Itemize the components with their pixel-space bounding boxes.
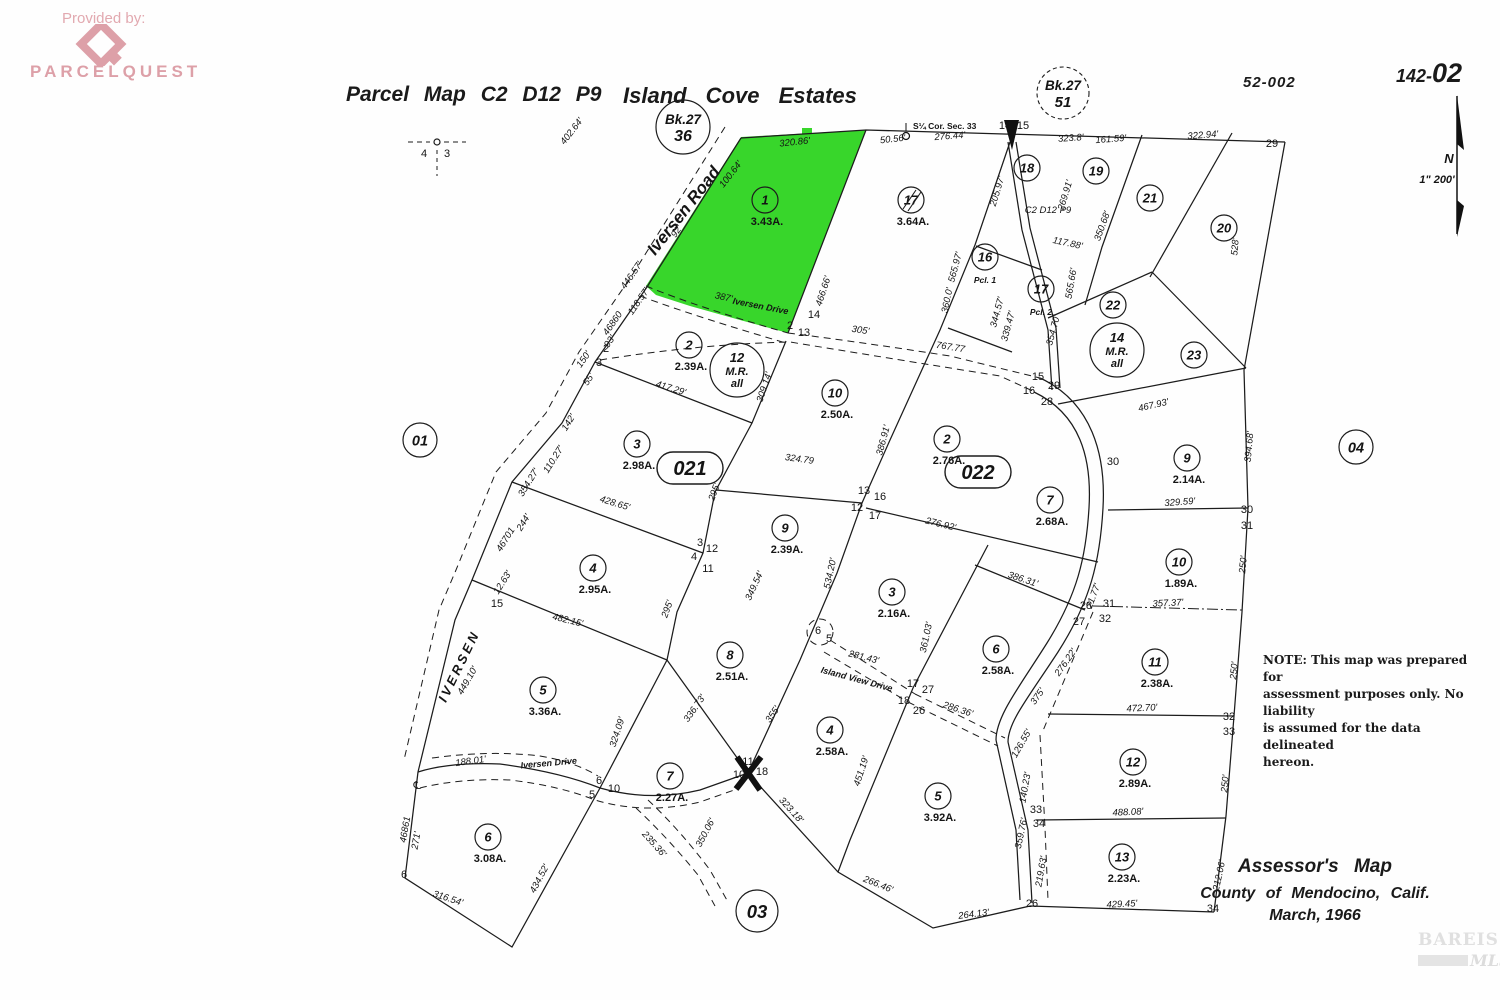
lot-corner-number: 16 bbox=[874, 491, 886, 503]
lot-corner-number: 13 bbox=[798, 327, 810, 339]
parcel-number: 2 bbox=[942, 432, 951, 447]
parcel-number: 7 bbox=[1046, 493, 1054, 508]
measurement-label: C2 D12 P9 bbox=[1025, 205, 1072, 216]
parcel-number: 8 bbox=[726, 648, 734, 663]
lot-corner-number: 16 bbox=[1023, 385, 1035, 397]
parcel-number: 18 bbox=[1020, 161, 1035, 176]
svg-text:4: 4 bbox=[421, 148, 427, 160]
measurement-label: 118.57' bbox=[626, 285, 653, 317]
acreage-label: 2.14A. bbox=[1173, 474, 1205, 486]
measurement-label: 467.93' bbox=[1137, 396, 1171, 414]
measurement-label: 50.56' bbox=[879, 133, 907, 147]
measurement-label: 323.8' bbox=[1058, 132, 1085, 145]
lot-corner-number: 28 bbox=[1041, 396, 1053, 408]
lot-corner-number: 28 bbox=[1080, 600, 1092, 612]
acreage-label: 2.68A. bbox=[1036, 516, 1068, 528]
lot-corner-number: 10 bbox=[733, 769, 745, 781]
area-code-label: 03 bbox=[747, 901, 768, 922]
measurement-label: 767.77 bbox=[935, 340, 966, 356]
acreage-label: 2.95A. bbox=[579, 584, 611, 596]
lot-corner-number: 13 bbox=[858, 485, 870, 497]
lot-corner-number: 15 bbox=[1032, 371, 1044, 383]
lot-corner-number: 4 bbox=[691, 551, 697, 563]
lot-corner-number: 6 bbox=[596, 775, 602, 787]
measurement-label: 140.23' bbox=[1017, 770, 1033, 803]
measurement-label: 349.54' bbox=[743, 569, 767, 603]
measurement-label: 12.63' bbox=[491, 568, 515, 597]
measurement-label: 55' bbox=[581, 370, 598, 387]
book-circle-51: Bk.27 51 bbox=[1037, 67, 1089, 119]
measurement-label: 354.27' bbox=[516, 466, 542, 499]
lot-corner-number: 34 bbox=[1207, 903, 1219, 915]
acreage-label: 1.89A. bbox=[1165, 578, 1197, 590]
parcel-number: 5 bbox=[539, 683, 547, 698]
lot-corner-number: 29 bbox=[1266, 138, 1278, 150]
parcel-number: 17 bbox=[1034, 282, 1049, 297]
measurement-label: 286.36' bbox=[940, 699, 975, 720]
measurement-label: 324.09' bbox=[608, 715, 628, 749]
mr-parcel-label: all bbox=[731, 378, 744, 390]
measurement-label: 434.52' bbox=[528, 862, 553, 895]
lot-corner-number: 33 bbox=[1223, 726, 1235, 738]
mr-parcel-label: M.R. bbox=[1105, 346, 1128, 358]
measurement-label: 205.97' bbox=[988, 174, 1008, 209]
lot-corner-number: 10 bbox=[608, 783, 620, 795]
acreage-label: 2.39A. bbox=[771, 544, 803, 556]
parcel-number: 6 bbox=[992, 642, 1000, 657]
measurement-label: 281.43' bbox=[846, 648, 881, 667]
parcel-number: 5 bbox=[934, 789, 942, 804]
corner-section-note: S¼ Cor. Sec. 33 bbox=[913, 121, 977, 131]
measurement-label: 188.01' bbox=[455, 754, 488, 769]
measurement-label: 357.37' bbox=[1152, 597, 1185, 610]
parcel-map[interactable]: S¼ Cor. Sec. 33 Bk.27 36 Bk.27 51 4 3 N … bbox=[0, 0, 1500, 1000]
lot-corner-number: 30 bbox=[1107, 456, 1119, 468]
measurement-label: 46701 bbox=[494, 526, 517, 554]
measurement-label: 386.31' bbox=[1006, 570, 1040, 590]
lot-corner-number: 27 bbox=[922, 684, 934, 696]
measurement-label: 150' bbox=[574, 348, 594, 370]
acreage-label: 3.43A. bbox=[751, 216, 783, 228]
lot-corner-number: 2 bbox=[787, 320, 793, 332]
measurement-label: 417.29' bbox=[654, 379, 688, 399]
parcel-number: 7 bbox=[666, 769, 674, 784]
acreage-label: 2.16A. bbox=[878, 608, 910, 620]
measurement-label: 305' bbox=[851, 324, 871, 338]
acreage-label: 3.92A. bbox=[924, 812, 956, 824]
measurement-label: 271' bbox=[409, 830, 423, 851]
parcel-boundary-lines bbox=[405, 130, 1285, 947]
parcel-number: 16 bbox=[978, 250, 993, 265]
acreage-label: 2.58A. bbox=[816, 746, 848, 758]
lot-corner-number: 31 bbox=[1103, 598, 1115, 610]
parcel-number: 12 bbox=[1126, 755, 1141, 770]
lot-corner-number: 11 bbox=[742, 756, 753, 768]
lot-corner-number: 5 bbox=[826, 633, 832, 645]
measurement-label: 565.66' bbox=[1063, 266, 1079, 299]
acreage-label: 3.64A. bbox=[897, 216, 929, 228]
acreage-label: 2.23A. bbox=[1108, 873, 1140, 885]
lot-corner-number: 12 bbox=[706, 543, 718, 555]
acreage-label: 2.50A. bbox=[821, 409, 853, 421]
svg-text:3: 3 bbox=[444, 148, 450, 160]
lot-corner-number: 6 bbox=[815, 625, 821, 637]
parcel-number: 4 bbox=[588, 561, 597, 576]
measurement-label: 161.59' bbox=[1095, 133, 1128, 146]
svg-text:Bk.27: Bk.27 bbox=[1045, 78, 1083, 93]
svg-text:51: 51 bbox=[1055, 94, 1072, 111]
measurement-label: 472.70' bbox=[1126, 702, 1159, 715]
lot-corner-number: 33 bbox=[1030, 804, 1042, 816]
measurement-label: 394.68' bbox=[1243, 430, 1257, 463]
acreage-label: 2.38A. bbox=[1141, 678, 1173, 690]
lot-corner-number: ℄ bbox=[412, 780, 420, 792]
lot-corner-number: 27 bbox=[1073, 616, 1085, 628]
measurement-label: 354.70' bbox=[1044, 313, 1063, 347]
parcel-number: 9 bbox=[1183, 451, 1191, 466]
lot-corner-number: 2 bbox=[603, 343, 609, 355]
parcel-number: 3 bbox=[633, 437, 641, 452]
lot-corner-number: 15 bbox=[491, 598, 503, 610]
area-code-label: 021 bbox=[673, 458, 706, 480]
acreage-label: 3.36A. bbox=[529, 706, 561, 718]
parcel-number: 6 bbox=[484, 830, 492, 845]
parcel-number: 11 bbox=[1148, 655, 1162, 670]
area-code-label: 04 bbox=[1348, 441, 1364, 457]
lot-corner-number: 6 bbox=[401, 869, 407, 881]
svg-text:Bk.27: Bk.27 bbox=[665, 112, 703, 127]
measurement-label: 336.73' bbox=[682, 692, 709, 725]
parcel-number: 10 bbox=[828, 386, 843, 401]
mr-parcel-number: 12 bbox=[730, 350, 745, 365]
parcel-map-page: Provided by: PARCELQUEST Parcel Map C2 D… bbox=[0, 0, 1500, 1000]
measurement-label: 466.66' bbox=[814, 274, 834, 308]
scale-label: 1" 200' bbox=[1419, 174, 1455, 186]
lot-corner-number: 31 bbox=[1241, 520, 1253, 532]
acreage-label: 2.27A. bbox=[656, 792, 688, 804]
acreage-label: 2.58A. bbox=[982, 665, 1014, 677]
measurement-label: 266.46' bbox=[861, 873, 896, 896]
parcel-number: 2 bbox=[684, 338, 693, 353]
measurement-label: 264.13' bbox=[957, 907, 991, 922]
mr-parcel-label: all bbox=[1111, 358, 1124, 370]
parcel-number: 19 bbox=[1089, 164, 1104, 179]
measurement-label: 565.97' bbox=[946, 250, 965, 284]
lot-corner-number: 3 bbox=[596, 357, 602, 369]
area-code-label: 022 bbox=[961, 462, 994, 484]
lot-corner-number: 17 bbox=[907, 678, 919, 690]
parcel-number: 21 bbox=[1142, 191, 1157, 206]
area-code-label: 01 bbox=[412, 434, 428, 450]
measurement-label: 244' bbox=[514, 511, 534, 534]
acreage-label: 2.51A. bbox=[716, 671, 748, 683]
measurement-label: 329.59' bbox=[1164, 496, 1197, 509]
book-circle-36: Bk.27 36 bbox=[656, 100, 710, 154]
measurement-label: 276.44' bbox=[933, 130, 967, 143]
measurement-label: 322.94' bbox=[1187, 129, 1220, 142]
lot-corner-number: 34 bbox=[1033, 818, 1045, 830]
acreage-label: 2.89A. bbox=[1119, 778, 1151, 790]
section-corner-mark: 4 3 bbox=[408, 139, 466, 176]
lot-corner-number: 26 bbox=[1026, 898, 1038, 910]
lot-corner-number: 26 bbox=[913, 705, 925, 717]
lot-corner-number: 30 bbox=[1241, 504, 1253, 516]
measurement-label: 375' bbox=[1028, 685, 1048, 707]
measurement-label: 488.08' bbox=[1112, 806, 1145, 819]
measurement-label: 250' bbox=[1237, 554, 1250, 575]
lot-corner-number: 5 bbox=[589, 789, 595, 801]
parcel-number: 1 bbox=[761, 193, 768, 208]
measurement-label: 482.15' bbox=[551, 612, 585, 630]
lot-corner-number: 17 bbox=[869, 510, 881, 522]
parcel-number: 22 bbox=[1105, 298, 1121, 313]
parcel-number: 23 bbox=[1186, 348, 1202, 363]
mr-parcel-number: 14 bbox=[1110, 330, 1125, 345]
parcel-number: 4 bbox=[825, 723, 834, 738]
measurement-label: 429.45' bbox=[1106, 898, 1139, 911]
measurement-label: 110.27' bbox=[541, 443, 567, 475]
measurement-label: 212.06' bbox=[1211, 858, 1229, 893]
measurement-label: 276.92' bbox=[923, 515, 958, 534]
measurement-label: 126.55' bbox=[1009, 727, 1035, 760]
acreage-label: 2.98A. bbox=[623, 460, 655, 472]
measurement-label: 350.06' bbox=[694, 816, 719, 849]
measurement-label: 360.0' bbox=[940, 286, 956, 314]
lot-corner-number: 12 bbox=[851, 502, 863, 514]
measurement-label: 451.19' bbox=[852, 754, 872, 788]
measurement-label: 250' bbox=[1228, 660, 1241, 681]
acreage-label: 3.08A. bbox=[474, 853, 506, 865]
svg-text:36: 36 bbox=[674, 128, 692, 145]
parcel-sub-label: Pcl. 1 bbox=[974, 275, 996, 285]
lot-corner-number: 32 bbox=[1223, 711, 1235, 723]
parcel-number: 9 bbox=[781, 521, 789, 536]
measurement-label: 142' bbox=[560, 411, 579, 433]
parcel-number: 10 bbox=[1172, 555, 1187, 570]
road-name-label: Iversen Drive bbox=[520, 756, 577, 771]
lot-corner-number: 29 bbox=[1048, 380, 1060, 392]
measurement-label: 117.88' bbox=[1052, 235, 1085, 252]
lot-corner-number: 14 bbox=[808, 309, 820, 321]
measurement-label: 402.64' bbox=[558, 115, 586, 147]
north-arrow-icon: N 1" 200' bbox=[1419, 95, 1464, 237]
lot-corner-number: 18 bbox=[756, 766, 768, 778]
measurement-label: 250' bbox=[1219, 773, 1232, 794]
lot-corner-number: 11 bbox=[702, 563, 713, 575]
lot-corner-number: 18 bbox=[898, 695, 910, 707]
parcel-number: 20 bbox=[1216, 221, 1232, 236]
measurement-label: 295' bbox=[659, 598, 676, 620]
mr-parcel-label: M.R. bbox=[725, 366, 748, 378]
measurement-label: 324.79 bbox=[784, 452, 815, 467]
lot-corner-number: 32 bbox=[1099, 613, 1111, 625]
parcel-number: 3 bbox=[888, 585, 896, 600]
lot-corner-number: 14 bbox=[999, 120, 1011, 132]
north-label: N bbox=[1444, 151, 1454, 166]
parcel-number: 13 bbox=[1115, 850, 1130, 865]
lot-corner-number: 15 bbox=[1017, 120, 1029, 132]
measurement-label: 361.03' bbox=[918, 620, 935, 654]
road-name-label: Island View Drive bbox=[820, 665, 894, 694]
measurement-label: 235.36' bbox=[639, 828, 669, 860]
lot-corner-number: 3 bbox=[697, 537, 703, 549]
measurement-label: 355' bbox=[763, 703, 783, 725]
measurement-label: 276.22' bbox=[1052, 646, 1080, 679]
parcel-sub-label: Pcl. 2 bbox=[1030, 307, 1052, 317]
acreage-label: 2.39A. bbox=[675, 361, 707, 373]
measurement-label: 323.18' bbox=[776, 795, 806, 826]
measurement-label: 428.65' bbox=[598, 494, 632, 514]
